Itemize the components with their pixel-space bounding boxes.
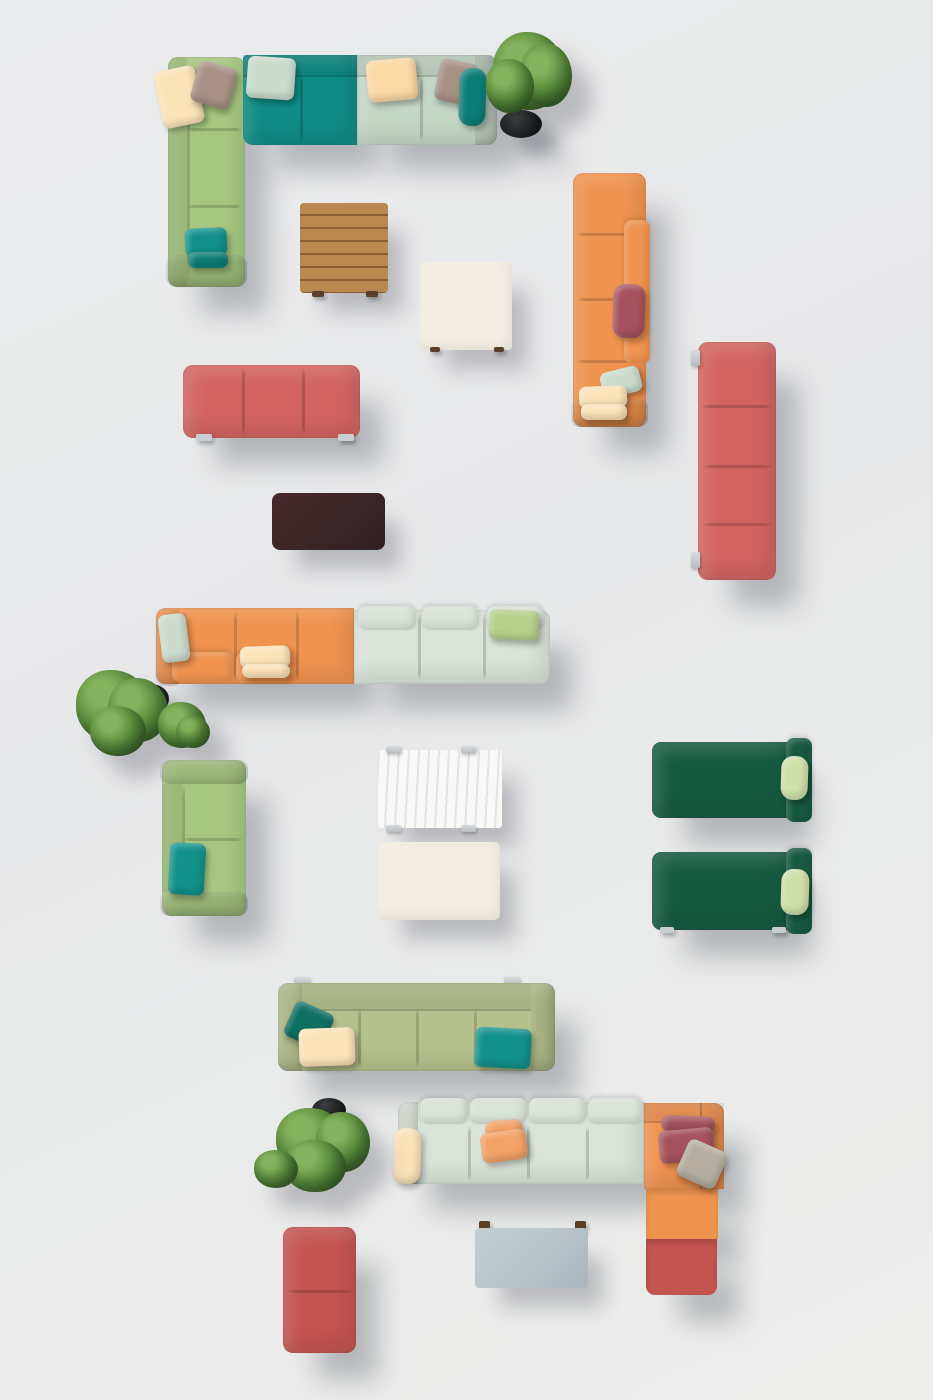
seam (187, 205, 242, 208)
light-green-pillow (780, 756, 809, 801)
seam (701, 405, 773, 408)
seam (187, 128, 242, 131)
green-arm-bottom (160, 892, 248, 916)
table-tab (386, 746, 401, 753)
bottom-sofa-orange-extension (646, 1189, 718, 1239)
teal-pillow-folded (188, 252, 228, 268)
cream-rect-table (378, 842, 500, 920)
table-tab (386, 825, 401, 832)
dark-green-daybed-lower (652, 852, 790, 930)
seam (468, 1126, 471, 1181)
blue-gray-table (475, 1228, 588, 1288)
table-tab (461, 825, 476, 832)
dark-green-daybed-upper (652, 742, 790, 818)
light-green-pillow (780, 869, 810, 916)
seam (416, 1009, 419, 1068)
mint-back-cushion (422, 606, 479, 630)
bench-foot (338, 434, 354, 441)
seam (242, 368, 245, 435)
seam (701, 523, 773, 526)
dark-brown-table (272, 493, 385, 550)
daybed-foot (660, 927, 674, 933)
cream-bolster-pillow (392, 1128, 422, 1185)
plant-foliage (254, 1150, 298, 1188)
cream-pillow (298, 1027, 355, 1067)
wood-slat-coffee-table (300, 203, 388, 293)
mint-pillow (246, 55, 297, 100)
bench-bracket (691, 350, 700, 366)
teal-pillow (474, 1027, 532, 1070)
seam (418, 613, 421, 681)
plant-foliage (90, 706, 146, 756)
bench-bracket (691, 552, 700, 568)
potted-plant-bottom (250, 1090, 380, 1205)
seam (483, 613, 486, 681)
teal-pillow (168, 842, 207, 896)
seam (358, 1009, 361, 1068)
table-foot (312, 291, 324, 297)
seam (300, 75, 303, 142)
potted-plant-top (480, 25, 590, 145)
mint-back-cushion (588, 1098, 643, 1124)
table-foot (366, 291, 378, 297)
coral-bench-vertical (698, 342, 776, 580)
cream-square-table (420, 262, 512, 350)
coral-bench-horizontal (183, 365, 360, 438)
green-arm-top (160, 760, 248, 784)
seam (302, 368, 305, 435)
plant-foliage (486, 59, 534, 113)
cream-pillow-folded (242, 664, 290, 678)
table-foot (430, 347, 440, 352)
seam (701, 465, 773, 468)
green-pillow (488, 609, 540, 642)
bench-foot (196, 434, 212, 441)
scene-floor (0, 0, 933, 1400)
sage-arm-right (531, 983, 555, 1071)
seam (296, 611, 299, 681)
table-foot (494, 347, 504, 352)
seam (586, 1126, 589, 1181)
cream-pillow-folded (581, 404, 627, 420)
mint-pillow (157, 612, 191, 663)
plant-sprig (176, 716, 210, 748)
peach-pillow (365, 57, 418, 103)
mint-back-cushion (420, 1098, 468, 1124)
seam (420, 75, 423, 142)
table-tab (461, 746, 476, 753)
marble-table (378, 750, 502, 828)
orange-pillow (479, 1128, 529, 1164)
seam (286, 1290, 353, 1293)
bottom-sofa-red-module (646, 1239, 717, 1295)
mint-back-cushion (529, 1098, 586, 1124)
mint-back-cushion (358, 606, 416, 630)
seam (182, 838, 243, 841)
potted-plants-middle-left (70, 665, 220, 775)
daybed-foot (772, 927, 786, 933)
plant-pot (500, 110, 542, 138)
maroon-bolster-pillow (612, 283, 646, 338)
sage-backrest-strip (302, 983, 531, 1011)
coral-ottoman (283, 1227, 356, 1353)
